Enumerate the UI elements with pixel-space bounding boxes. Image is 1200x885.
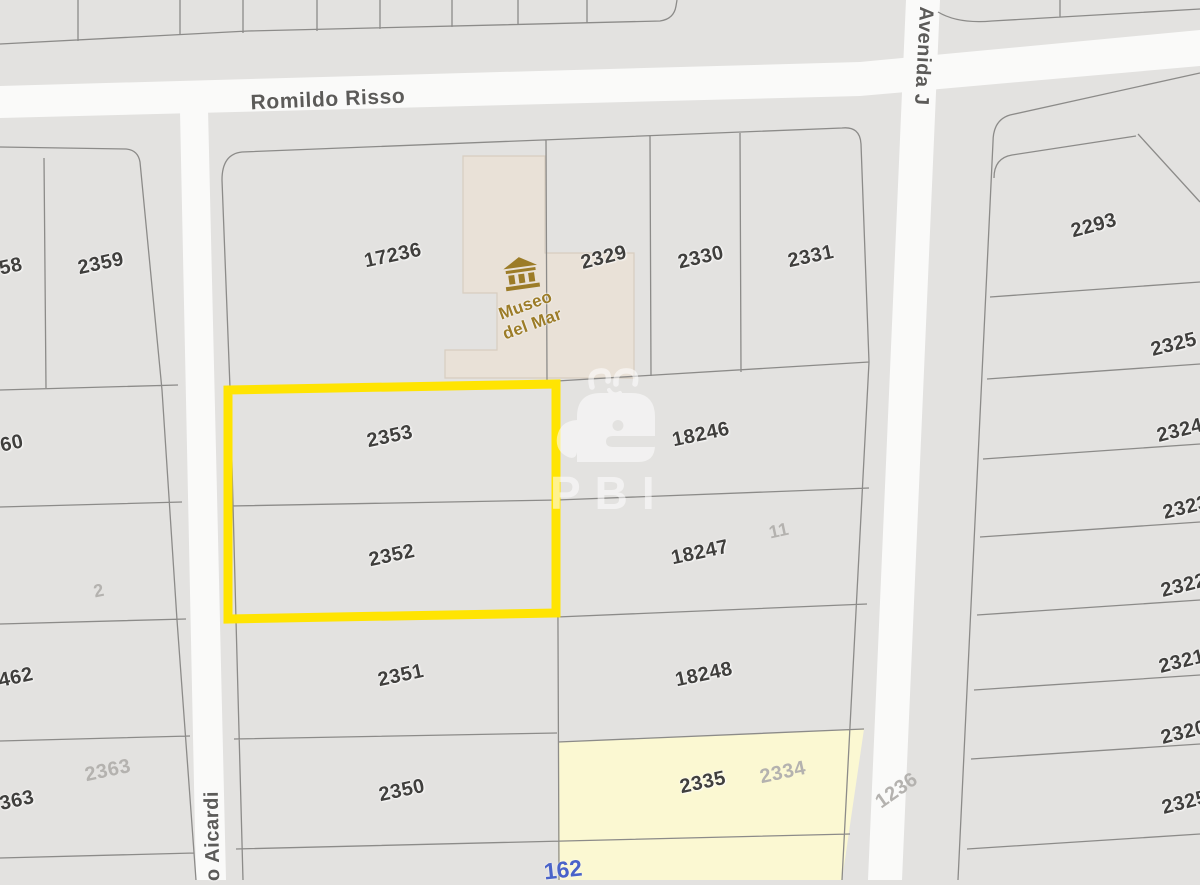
watermark-text: PBI — [550, 467, 669, 519]
map-canvas[interactable]: PBI — [0, 0, 1200, 880]
parcel-label-60: 60 — [0, 430, 26, 457]
highlighted-parcel-region[interactable] — [228, 384, 556, 619]
map-viewport[interactable]: PBI Museo del Mar Romildo Risso Avenida … — [0, 0, 1200, 880]
parcel-label-11-faint: 11 — [767, 519, 791, 544]
museum-icon — [501, 254, 541, 293]
parcel-label-58: 58 — [0, 253, 25, 280]
highlighted-zone-parcel-2335 — [558, 729, 864, 880]
street-label-aicardi: o Aicardi — [201, 791, 226, 882]
address-label-162: 162 — [543, 855, 584, 885]
